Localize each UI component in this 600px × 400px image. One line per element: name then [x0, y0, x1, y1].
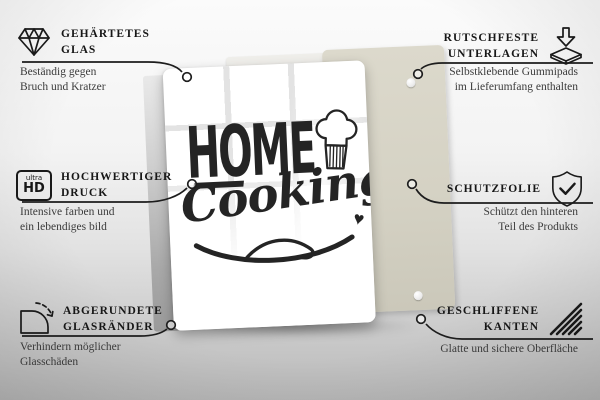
annotation-desc-polished-edges: Glatte und sichere Oberfläche	[440, 342, 578, 357]
desc-line: Intensive farben und	[20, 205, 115, 220]
home-cooking-design: HOME Cooking ♥	[163, 60, 376, 331]
rubber-pad-icon	[548, 26, 584, 66]
annotation-title: KANTEN	[437, 319, 539, 335]
desc-line: Glatte und sichere Oberfläche	[440, 342, 578, 357]
annotation-rounded-edges: ABGERUNDETE GLASRÄNDER	[16, 301, 163, 337]
rubber-pad	[414, 291, 423, 300]
annotation-title: HOCHWERTIGER	[61, 169, 172, 185]
hatched-edges-icon	[548, 301, 584, 337]
glass-board: HOME Cooking ♥	[163, 60, 376, 331]
flourish-swash	[192, 231, 357, 274]
annotation-non-slip-pads: RUTSCHFESTE UNTERLAGEN	[444, 26, 584, 66]
annotation-title: RUTSCHFESTE	[444, 30, 539, 46]
annotation-polished-edges: GESCHLIFFENE KANTEN	[437, 301, 584, 337]
product-infographic: HOME Cooking ♥	[0, 0, 600, 400]
shield-check-icon	[550, 170, 584, 208]
desc-line: Teil des Produkts	[483, 220, 578, 235]
desc-line: im Lieferumfang enthalten	[449, 80, 578, 95]
annotation-desc-tempered-glass: Beständig gegen Bruch und Kratzer	[20, 65, 106, 95]
annotation-desc-rounded-edges: Verhindern möglicher Glasschäden	[20, 340, 121, 370]
annotation-desc-high-quality-print: Intensive farben und ein lebendiges bild	[20, 205, 115, 235]
annotation-desc-non-slip-pads: Selbstklebende Gummipads im Lieferumfang…	[449, 65, 578, 95]
desc-line: Verhindern möglicher	[20, 340, 121, 355]
product-photo: HOME Cooking ♥	[134, 38, 476, 342]
rounded-corner-icon	[16, 301, 54, 337]
ultra-hd-icon: ultra HD	[16, 170, 52, 201]
annotation-high-quality-print: ultra HD HOCHWERTIGER DRUCK	[16, 169, 172, 201]
annotation-title: UNTERLAGEN	[444, 46, 539, 62]
diamond-icon	[16, 26, 52, 58]
annotation-tempered-glass: GEHÄRTETES GLAS	[16, 26, 150, 58]
annotation-title: GLAS	[61, 42, 150, 58]
heart-icon: ♥	[351, 208, 366, 231]
desc-line: Glasschäden	[20, 355, 121, 370]
annotation-title: DRUCK	[61, 185, 172, 201]
desc-line: Beständig gegen	[20, 65, 106, 80]
annotation-title: GEHÄRTETES	[61, 26, 150, 42]
annotation-title: ABGERUNDETE	[63, 303, 163, 319]
desc-line: ein lebendiges bild	[20, 220, 115, 235]
annotation-protective-film: SCHUTZFOLIE	[447, 170, 584, 208]
rubber-pad	[406, 78, 415, 87]
desc-line: Bruch und Kratzer	[20, 80, 106, 95]
annotation-desc-protective-film: Schützt den hinteren Teil des Produkts	[483, 205, 578, 235]
annotation-title: GESCHLIFFENE	[437, 303, 539, 319]
desc-line: Schützt den hinteren	[483, 205, 578, 220]
ultra-hd-label-big: HD	[23, 182, 45, 195]
desc-line: Selbstklebende Gummipads	[449, 65, 578, 80]
annotation-title: GLASRÄNDER	[63, 319, 163, 335]
annotation-title: SCHUTZFOLIE	[447, 181, 541, 197]
